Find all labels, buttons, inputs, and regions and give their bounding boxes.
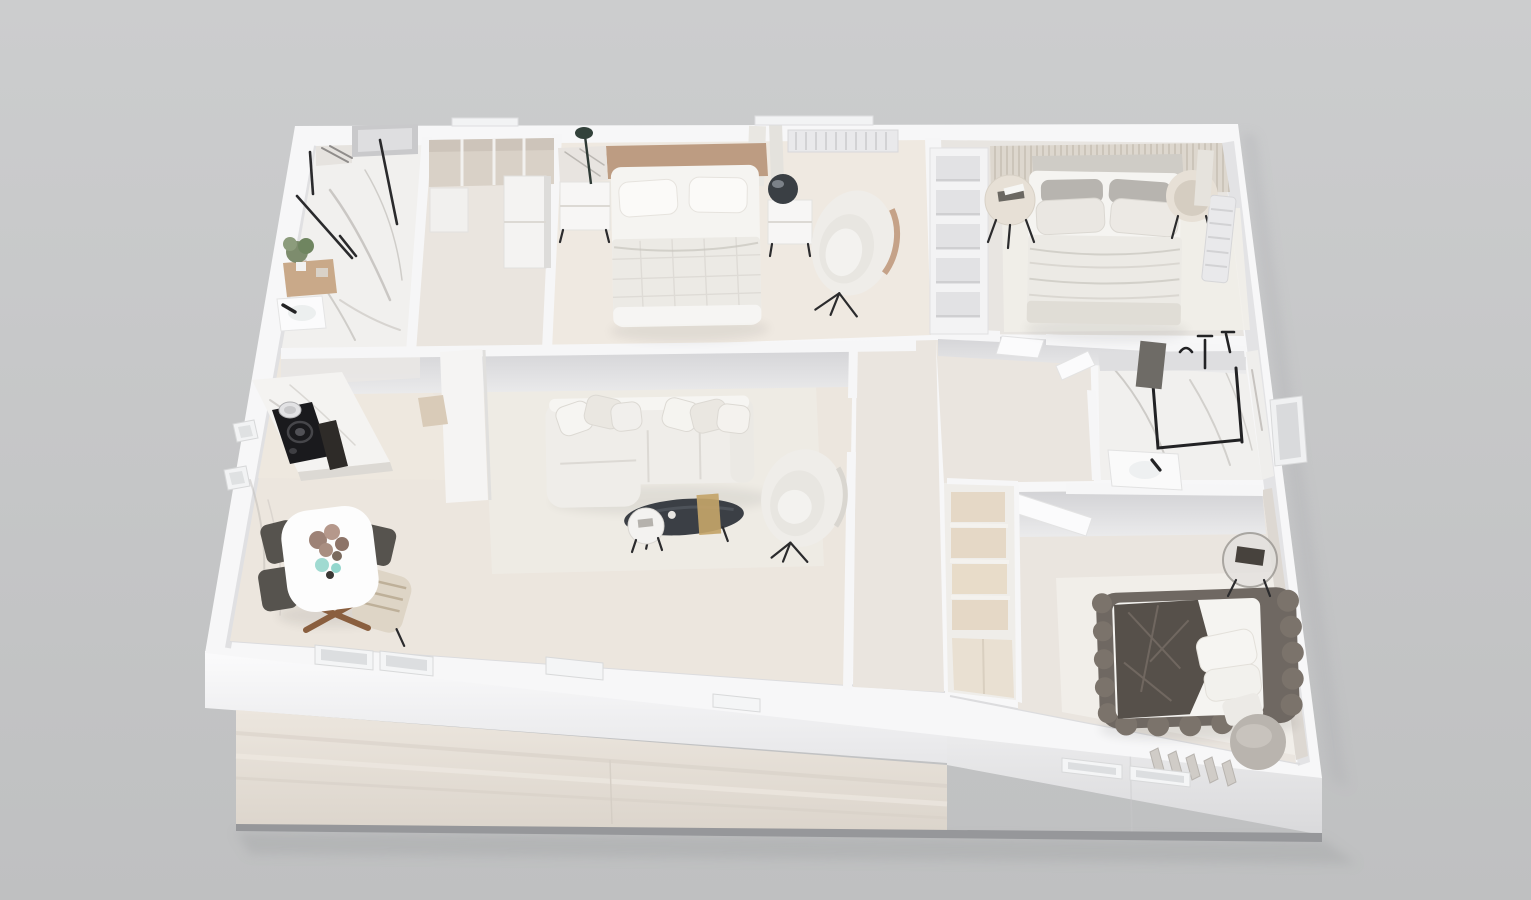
low-cabinet — [430, 188, 468, 232]
bathroom-2-wall-face — [1098, 351, 1246, 371]
vanity-top — [283, 259, 337, 297]
floor-plan-render — [0, 0, 1531, 900]
bathroom-2-window — [1270, 396, 1307, 466]
bookcase-cubbies — [936, 156, 980, 318]
teal-vase-2 — [331, 563, 341, 573]
wall-w7-top-a — [848, 342, 858, 398]
bed-2-pillow-left — [1036, 198, 1106, 236]
closet-cubbies — [950, 492, 1010, 630]
bed-2-foot-band — [1027, 301, 1181, 326]
teal-vase-1 — [315, 558, 329, 572]
bathroom-1-window-unit — [352, 124, 418, 157]
bed-1-pillow-right — [689, 177, 748, 213]
kitchen-side-panel — [418, 395, 448, 427]
cooktop-control — [289, 448, 297, 454]
table-top — [278, 503, 382, 615]
hall-closet-column — [946, 484, 1016, 700]
tall-cabinet — [504, 176, 551, 268]
curtain-right — [769, 124, 784, 182]
bookcase-partition — [930, 148, 988, 334]
bathroom-2-sink — [1108, 450, 1182, 490]
apartment-3d-floor-plan — [0, 0, 1531, 900]
top-sill-bedroom-1 — [755, 116, 873, 125]
radiator — [788, 130, 898, 152]
bed-1-foot-sheet — [613, 305, 761, 326]
top-sill-corridor — [452, 118, 518, 126]
kitchen-tall-unit — [440, 349, 488, 503]
bed-1-pillow-left — [618, 179, 678, 218]
bedroom-2-door-leaf — [996, 336, 1044, 358]
sphere-lamp — [768, 174, 798, 204]
sofa — [545, 390, 771, 516]
towel — [1136, 341, 1167, 389]
bathroom-1-sink — [277, 296, 326, 331]
wardrobe-top-shade — [429, 138, 554, 152]
bed-1 — [607, 165, 770, 344]
hall-floor — [853, 340, 944, 692]
vanity-candles — [316, 268, 328, 277]
left-wall-window-1 — [233, 420, 258, 442]
gold-runner — [697, 494, 722, 535]
pot — [279, 402, 301, 418]
left-wall-window-2 — [224, 466, 250, 490]
